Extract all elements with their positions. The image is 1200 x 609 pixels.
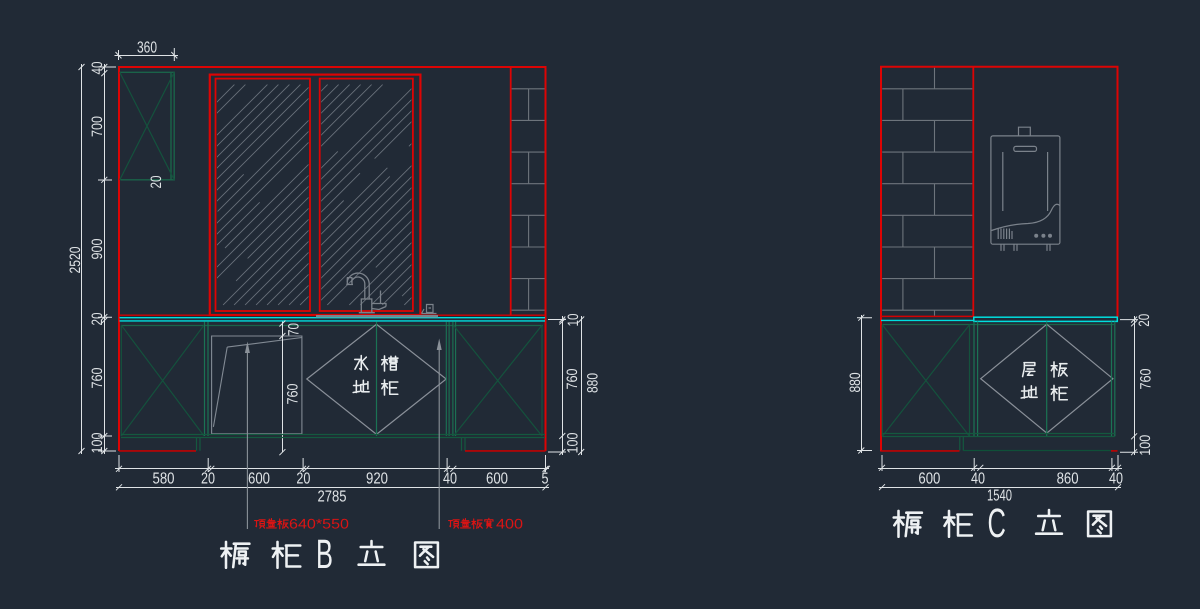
svg-text:880: 880 (847, 373, 864, 393)
svg-text:10: 10 (565, 314, 582, 327)
svg-text:760: 760 (1138, 369, 1155, 390)
svg-text:70: 70 (286, 323, 303, 336)
svg-text:600: 600 (918, 471, 940, 488)
svg-text:20: 20 (201, 471, 215, 488)
svg-text:640*550: 640*550 (289, 516, 349, 532)
svg-text:40: 40 (89, 62, 106, 75)
svg-text:100: 100 (565, 433, 582, 454)
svg-text:760: 760 (89, 368, 106, 389)
svg-text:400: 400 (496, 516, 523, 532)
svg-text:20: 20 (148, 176, 165, 189)
svg-text:100: 100 (1137, 435, 1154, 456)
svg-text:40: 40 (971, 471, 985, 488)
svg-text:360: 360 (137, 40, 157, 57)
svg-text:20: 20 (296, 471, 310, 488)
svg-text:760: 760 (564, 369, 581, 390)
svg-text:580: 580 (153, 471, 175, 488)
svg-text:2520: 2520 (67, 247, 84, 274)
svg-text:C: C (988, 500, 1006, 546)
svg-text:100: 100 (89, 433, 106, 454)
svg-text:B: B (316, 531, 333, 577)
svg-text:860: 860 (1057, 471, 1079, 488)
svg-text:700: 700 (89, 116, 106, 137)
svg-text:20: 20 (89, 313, 106, 326)
svg-text:2785: 2785 (318, 489, 347, 506)
svg-text:900: 900 (89, 239, 106, 260)
svg-text:920: 920 (366, 471, 388, 488)
svg-text:880: 880 (585, 373, 602, 393)
svg-text:40: 40 (443, 471, 457, 488)
svg-text:600: 600 (248, 471, 270, 488)
svg-text:600: 600 (486, 471, 508, 488)
svg-text:20: 20 (1136, 314, 1153, 327)
svg-text:760: 760 (285, 384, 302, 405)
svg-text:40: 40 (1109, 471, 1123, 488)
